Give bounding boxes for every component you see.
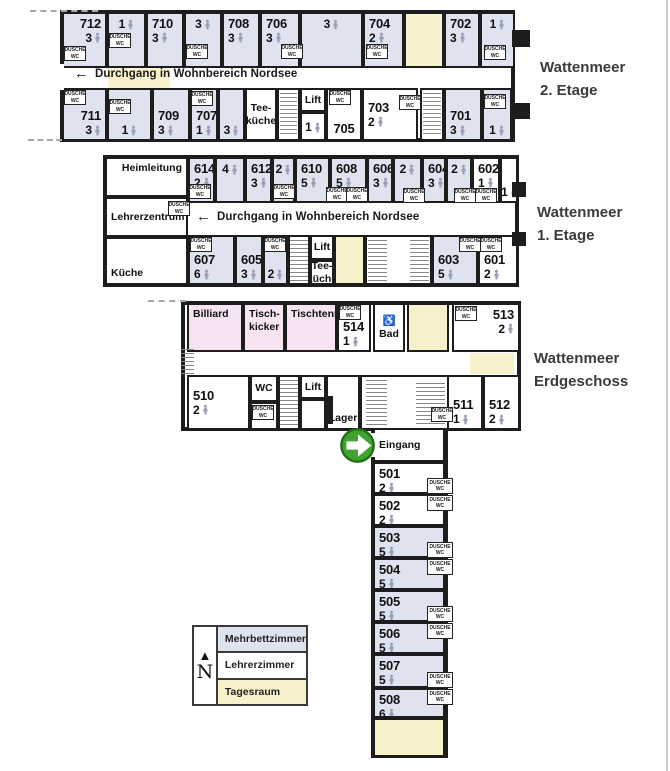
person-icon [352, 336, 359, 347]
room-area: 3 [218, 88, 245, 141]
legend: ▲ N Mehrbettzimmer Lehrerzimmer Tagesrau… [192, 625, 308, 706]
person-icon [388, 514, 395, 525]
wall-segment [512, 103, 530, 119]
person-icon [205, 125, 212, 136]
area-eingang: Eingang [373, 428, 445, 462]
wall-segment [512, 182, 526, 197]
person-icon [310, 177, 317, 188]
shower-wc-closet: DUSCHEWC [264, 237, 286, 252]
room-606: 6063 [367, 157, 393, 203]
room-area: 1 [107, 88, 152, 141]
closet-label-wc: WC [280, 192, 288, 198]
person-icon [161, 32, 168, 43]
floor-plan-canvas: ← Durchgang in Wohnbereich Nordsee ← Dur… [0, 0, 670, 771]
bed-count: 3 [85, 32, 101, 44]
person-icon [204, 19, 211, 30]
shower-wc-closet: DUSCHEWC [475, 188, 497, 203]
floor-label-line2: 2. Etage [540, 82, 598, 99]
room-number: 507 [379, 659, 400, 673]
room-number: 505 [379, 595, 400, 609]
room-610: 6105 [295, 157, 330, 203]
closet-label-wc: WC [466, 245, 474, 251]
area-lift: Lift [300, 88, 326, 112]
stairs [280, 93, 297, 136]
person-icon [314, 122, 321, 133]
bed-count: 5 [379, 578, 395, 590]
area-tischtennis: Tischtennis [285, 303, 337, 352]
person-icon [447, 269, 454, 280]
shower-wc-closet: DUSCHEWC [329, 90, 351, 105]
person-icon [237, 32, 244, 43]
corridor-banner-text: Durchgang in Wohnbereich Nordsee [217, 211, 419, 223]
bed-count: 1 [478, 177, 494, 189]
shower-wc-closet: DUSCHEWC [273, 184, 295, 199]
bed-count: 3 [428, 177, 444, 189]
shower-wc-closet: DUSCHEWC [191, 91, 213, 106]
legend-item-tagesraum: Tagesraum [218, 678, 306, 704]
stairs [280, 380, 298, 426]
shower-wc-closet: DUSCHEWC [427, 606, 453, 622]
area-k-che: Küche [105, 237, 188, 285]
bed-count: 3 [373, 177, 389, 189]
room-label: ♿ Bad [379, 315, 399, 340]
room-area [404, 12, 444, 68]
bed-count: 2 [368, 116, 384, 128]
wall-segment [326, 396, 333, 424]
closet-label-wc: WC [346, 313, 354, 319]
room-number: 606 [373, 162, 393, 176]
room-number: 708 [228, 17, 249, 31]
wall-segment [512, 232, 526, 246]
shower-wc-closet: DUSCHEWC [339, 305, 361, 320]
closet-label-wc: WC [436, 680, 444, 686]
floor-label-line1: Wattenmeer [540, 59, 625, 76]
room-number: 513 [493, 308, 514, 322]
room-701: 7013 [444, 88, 482, 141]
room-area [300, 399, 326, 430]
closet-label-wc: WC [271, 245, 279, 251]
room-label: Lift [305, 94, 321, 107]
room-label: Heimleitung [122, 162, 182, 175]
room-number: 502 [379, 499, 400, 513]
closet-label-wc: WC [259, 413, 267, 419]
room-label: Eingang [379, 439, 420, 452]
closet-label-wc: WC [487, 245, 495, 251]
room-number: 506 [379, 627, 400, 641]
room-number: 601 [484, 253, 505, 267]
closet-label-wc: WC [336, 98, 344, 104]
area-heimleitung: Heimleitung [105, 157, 188, 197]
stairs [290, 240, 308, 281]
bed-count: 2 [498, 323, 514, 335]
room-number: 610 [301, 162, 322, 176]
closet-label-wc: WC [197, 245, 205, 251]
room-label: Küche [111, 267, 143, 280]
room-label: Tisch- kicker [249, 308, 280, 333]
shower-wc-closet: DUSCHEWC [366, 44, 388, 59]
closet-label-wc: WC [333, 195, 341, 201]
person-icon [382, 177, 389, 188]
room-number: 705 [333, 122, 354, 136]
area-tee-k-che: Tee- küche [245, 88, 277, 141]
shower-wc-closet: DUSCHEWC [431, 407, 453, 422]
person-icon [460, 164, 467, 175]
stairs [368, 240, 387, 281]
corridor-banner-text: Durchgang in Wohnbereich Nordsee [95, 68, 297, 80]
room-area [334, 235, 365, 285]
bed-count: 4 [222, 163, 238, 175]
closet-label-wc: WC [436, 550, 444, 556]
shower-wc-closet: DUSCHEWC [459, 237, 481, 252]
person-icon [276, 269, 283, 280]
closet-label-wc: WC [193, 52, 201, 58]
person-icon [388, 610, 395, 621]
person-icon [388, 578, 395, 589]
page-edge-line [666, 0, 668, 771]
room-label: Lift [314, 241, 330, 254]
room-number: 510 [193, 389, 214, 403]
person-icon [232, 125, 239, 136]
bed-count: 2 [369, 32, 385, 44]
person-icon [260, 177, 267, 188]
person-icon [459, 125, 466, 136]
bed-count: 2 [193, 404, 209, 416]
bed-count: 3 [241, 268, 257, 280]
bed-count: 2 [451, 163, 467, 175]
person-icon [493, 269, 500, 280]
room-number: 504 [379, 563, 400, 577]
room-708: 7083 [222, 12, 260, 68]
continuation-dashes [148, 300, 186, 302]
bed-count: 2 [489, 413, 505, 425]
bed-count: 2 [268, 268, 284, 280]
room-number: 701 [450, 109, 471, 123]
shower-wc-closet: DUSCHEWC [346, 187, 368, 202]
shower-wc-closet: DUSCHEWC [109, 33, 131, 48]
closet-label-wc: WC [462, 314, 470, 320]
bed-count: 1 [490, 18, 506, 30]
bed-count: 1 [489, 124, 505, 136]
bed-count: 3 [85, 124, 101, 136]
shower-wc-closet: DUSCHEWC [484, 45, 506, 60]
person-icon [498, 414, 505, 425]
shower-wc-closet: DUSCHEWC [427, 672, 453, 688]
person-icon [437, 177, 444, 188]
shower-wc-closet: DUSCHEWC [252, 405, 274, 420]
room-number: 603 [438, 253, 459, 267]
person-icon [284, 164, 291, 175]
room-area [373, 718, 445, 757]
person-icon [388, 482, 395, 493]
left-arrow-icon: ← [74, 66, 89, 81]
room-510: 5102 [187, 375, 250, 430]
closet-label-wc: WC [438, 415, 446, 421]
person-icon [332, 19, 339, 30]
floor-label-line1: Wattenmeer [534, 350, 619, 367]
shower-wc-closet: DUSCHEWC [64, 46, 86, 61]
room-number: 608 [336, 162, 357, 176]
room-area: 4 [215, 157, 245, 203]
bed-count: 3 [224, 124, 240, 136]
floor-label-etage1: Wattenmeer 1. Etage [537, 201, 622, 247]
room-number: 612 [251, 162, 272, 176]
person-icon [388, 708, 395, 718]
floor-label-line2: 1. Etage [537, 227, 595, 244]
bed-count: 5 [379, 610, 395, 622]
closet-label-wc: WC [288, 52, 296, 58]
bed-count: 5 [438, 268, 454, 280]
room-number: 503 [379, 531, 400, 545]
room-709: 7093 [152, 88, 190, 141]
shower-wc-closet: DUSCHEWC [427, 623, 453, 639]
room-area: 1 [300, 112, 326, 141]
floor-label-etage2: Wattenmeer 2. Etage [540, 56, 625, 102]
area-billiard: Billiard [187, 303, 243, 352]
bed-count: 3 [251, 177, 267, 189]
stairs [423, 93, 441, 136]
floor-label-line1: Wattenmeer [537, 204, 622, 221]
person-icon [203, 269, 210, 280]
bed-count: 2 [379, 482, 395, 494]
room-706: 7063 [260, 12, 300, 68]
room-number: 514 [343, 320, 364, 334]
person-icon [408, 164, 415, 175]
shower-wc-closet: DUSCHEWC [427, 478, 453, 494]
area-lift: Lift [310, 235, 334, 260]
bed-count: 1 [343, 335, 359, 347]
bed-count: 3 [450, 32, 466, 44]
corridor-banner-etage2: ← Durchgang in Wohnbereich Nordsee [74, 66, 297, 81]
person-icon [130, 125, 137, 136]
shower-wc-closet: DUSCHEWC [427, 542, 453, 558]
corridor-highlight [470, 353, 514, 374]
shower-wc-closet: DUSCHEWC [480, 237, 502, 252]
bed-count: 5 [301, 177, 317, 189]
room-area [407, 303, 449, 352]
person-icon [127, 19, 134, 30]
shower-wc-closet: DUSCHEWC [186, 44, 208, 59]
corridor-banner-etage1: ← Durchgang in Wohnbereich Nordsee [196, 209, 419, 224]
bed-count: 1 [122, 124, 138, 136]
room-number: 712 [80, 17, 101, 31]
room-number: 604 [428, 162, 446, 176]
legend-item-mehrbettzimmer: Mehrbettzimmer [218, 627, 306, 651]
person-icon [378, 32, 385, 43]
room-number: 511 [453, 398, 473, 412]
room-number: 512 [489, 398, 510, 412]
person-icon [94, 125, 101, 136]
room-number: 605 [241, 253, 262, 267]
floor-label-line2: Erdgeschoss [534, 373, 628, 390]
closet-label-wc: WC [406, 103, 414, 109]
room-label: Tee- küche [246, 102, 276, 127]
area-tee-k-che: Tee- küche [310, 260, 334, 285]
person-icon [250, 269, 257, 280]
room-number: 704 [369, 17, 390, 31]
room-612: 6123 [245, 157, 272, 203]
room-number: 501 [379, 467, 400, 481]
room-number: 702 [450, 17, 471, 31]
closet-label-wc: WC [436, 697, 444, 703]
person-icon [275, 32, 282, 43]
left-arrow-icon: ← [196, 209, 211, 224]
bed-count: 3 [324, 18, 340, 30]
closet-label-wc: WC [436, 486, 444, 492]
room-512: 5122 [483, 375, 520, 430]
bed-count: 1 [196, 124, 212, 136]
shower-wc-closet: DUSCHEWC [399, 95, 421, 110]
room-label: WC [255, 382, 273, 395]
person-icon [377, 116, 384, 127]
room-label: Lift [305, 381, 321, 394]
room-704: 7042 [363, 12, 404, 68]
room-number: 614 [194, 162, 215, 176]
bed-count: 6 [194, 268, 210, 280]
person-icon [167, 125, 174, 136]
closet-label-wc: WC [491, 53, 499, 59]
room-number: 703 [368, 101, 389, 115]
north-compass-icon: ▲ N [194, 627, 218, 704]
person-icon [507, 323, 514, 334]
person-icon [388, 674, 395, 685]
bed-count: 6 [379, 708, 395, 718]
wall-segment [512, 30, 530, 47]
bed-count: 2 [484, 268, 500, 280]
person-icon [202, 404, 209, 415]
closet-label-wc: WC [436, 503, 444, 509]
room-number: 602 [478, 162, 499, 176]
shower-wc-closet: DUSCHEWC [281, 44, 303, 59]
shower-wc-closet: DUSCHEWC [64, 90, 86, 105]
room-number: 711 [81, 109, 101, 123]
person-icon [462, 414, 469, 425]
area-lift: Lift [300, 375, 326, 399]
room-number: 706 [266, 17, 287, 31]
closet-label-wc: WC [198, 99, 206, 105]
person-icon [388, 642, 395, 653]
room-number: 508 [379, 693, 400, 707]
shower-wc-closet: DUSCHEWC [109, 99, 131, 114]
bed-count: 1 [453, 413, 469, 425]
bed-count: 3 [195, 18, 211, 30]
bed-count: 3 [228, 32, 244, 44]
person-icon [94, 32, 101, 43]
stairs [410, 240, 429, 281]
closet-label-wc: WC [491, 102, 499, 108]
room-label: Billiard [193, 308, 229, 321]
bed-count: 3 [266, 32, 282, 44]
closet-label-wc: WC [436, 567, 444, 573]
room-710: 7103 [146, 12, 184, 68]
person-icon [231, 164, 238, 175]
person-icon [388, 546, 395, 557]
shower-wc-closet: DUSCHEWC [168, 201, 190, 216]
room-number: 707 [196, 109, 217, 123]
room-label: Tischtennis [291, 308, 337, 321]
room-702: 7023 [444, 12, 480, 68]
shower-wc-closet: DUSCHEWC [189, 184, 211, 199]
floor-label-erdgeschoss: Wattenmeer Erdgeschoss [534, 347, 628, 393]
shower-wc-closet: DUSCHEWC [427, 495, 453, 511]
shower-wc-closet: DUSCHEWC [484, 94, 506, 109]
closet-label-wc: WC [373, 52, 381, 58]
bed-count: 2 [379, 514, 395, 526]
closet-label-wc: WC [436, 631, 444, 637]
bed-count: 3 [152, 32, 168, 44]
compass-arrow-icon: ▲ [199, 649, 212, 662]
bed-count: 1 [119, 18, 135, 30]
closet-label-wc: WC [71, 54, 79, 60]
compass-letter: N [197, 662, 214, 683]
shower-wc-closet: DUSCHEWC [427, 559, 453, 575]
room-area: 3 [300, 12, 363, 68]
closet-label-wc: WC [461, 196, 469, 202]
bed-count: 5 [379, 642, 395, 654]
closet-label-wc: WC [196, 192, 204, 198]
closet-label-wc: WC [71, 98, 79, 104]
shower-wc-closet: DUSCHEWC [403, 188, 425, 203]
area-bad: ♿ Bad [373, 303, 405, 352]
area-tisch-kicker: Tisch- kicker [243, 303, 285, 352]
bed-count: 5 [379, 674, 395, 686]
closet-label-wc: WC [116, 107, 124, 113]
door-opening [56, 64, 64, 90]
shower-wc-closet: DUSCHEWC [326, 187, 348, 202]
bed-count: 5 [379, 546, 395, 558]
closet-label-wc: WC [353, 195, 361, 201]
room-604: 6043 [422, 157, 446, 203]
room-605: 6053 [235, 235, 263, 285]
closet-label-wc: WC [116, 41, 124, 47]
room-area: 3 [184, 12, 222, 68]
shower-wc-closet: DUSCHEWC [427, 689, 453, 705]
legend-rows: Mehrbettzimmer Lehrerzimmer Tagesraum [218, 627, 306, 704]
person-icon [459, 32, 466, 43]
entrance-arrow-icon [339, 427, 376, 464]
person-icon [498, 125, 505, 136]
stairs [181, 349, 194, 377]
closet-label-wc: WC [482, 196, 490, 202]
room-number: 709 [158, 109, 179, 123]
bed-count: 2 [400, 163, 416, 175]
room-number: 607 [194, 253, 215, 267]
bed-count: 3 [158, 124, 174, 136]
bed-count: 1 [305, 121, 321, 133]
person-icon [498, 19, 505, 30]
shower-wc-closet: DUSCHEWC [454, 188, 476, 203]
person-icon [487, 177, 494, 188]
room-label: Tee- küche [310, 260, 334, 285]
shower-wc-closet: DUSCHEWC [455, 306, 477, 321]
legend-item-lehrerzimmer: Lehrerzimmer [218, 651, 306, 677]
closet-label-wc: WC [410, 196, 418, 202]
closet-label-wc: WC [175, 209, 183, 215]
room-number: 710 [152, 17, 173, 31]
bed-count: 3 [450, 124, 466, 136]
stairs [366, 380, 387, 426]
closet-label-wc: WC [436, 614, 444, 620]
area-wc: WC [250, 375, 278, 402]
bed-count: 2 [276, 163, 292, 175]
shower-wc-closet: DUSCHEWC [190, 237, 212, 252]
